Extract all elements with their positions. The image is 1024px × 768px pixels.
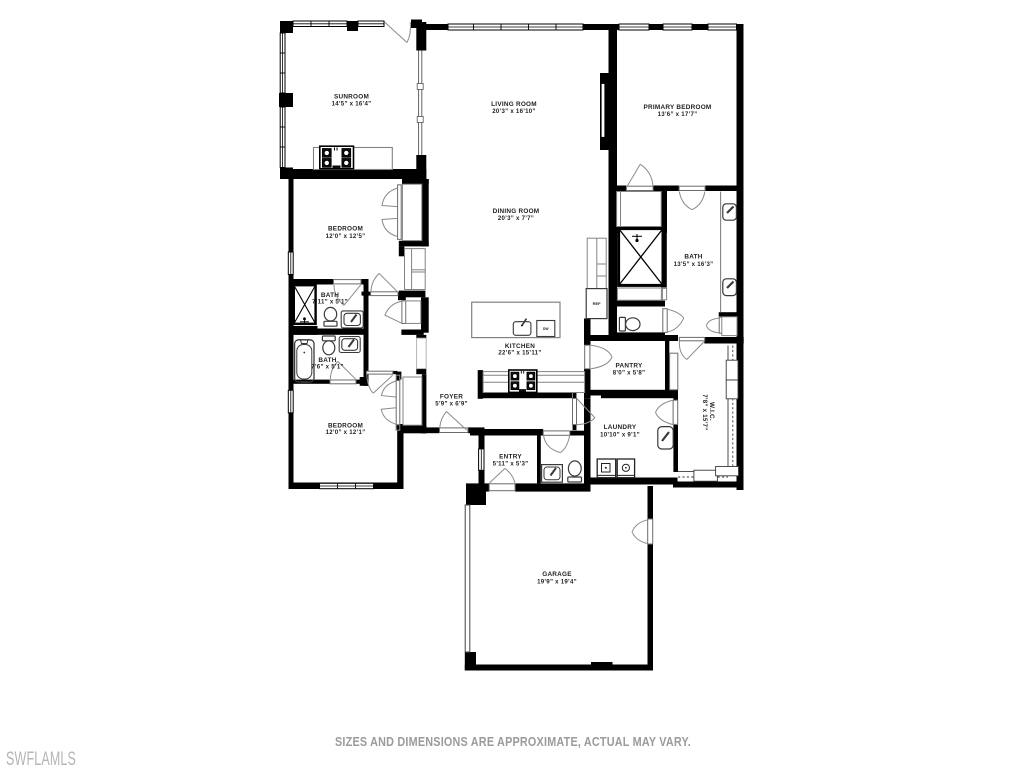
svg-text:LAUNDRY: LAUNDRY: [604, 424, 637, 431]
svg-text:5’9” x 6’9”: 5’9” x 6’9”: [435, 401, 468, 408]
svg-text:13’5” x 16’3”: 13’5” x 16’3”: [674, 261, 714, 268]
svg-text:12’0” x 12’5”: 12’0” x 12’5”: [326, 233, 366, 240]
svg-text:ENTRY: ENTRY: [499, 454, 522, 461]
svg-text:BATH: BATH: [684, 254, 702, 261]
svg-text:SWFLAMLS: SWFLAMLS: [6, 749, 76, 768]
svg-text:14’5” x 16’4”: 14’5” x 16’4”: [332, 100, 372, 107]
svg-text:W.I.C.: W.I.C.: [708, 402, 715, 421]
svg-text:8’0” x 5’8”: 8’0” x 5’8”: [613, 370, 646, 377]
svg-text:5’11” x 5’3”: 5’11” x 5’3”: [493, 461, 529, 468]
svg-text:SIZES AND DIMENSIONS ARE APPRO: SIZES AND DIMENSIONS ARE APPROXIMATE, AC…: [335, 734, 691, 749]
svg-text:REF: REF: [593, 301, 602, 306]
svg-text:20’3” x 16’10”: 20’3” x 16’10”: [492, 108, 535, 115]
svg-text:7’8” x 15’7”: 7’8” x 15’7”: [701, 394, 708, 430]
svg-text:LIVING ROOM: LIVING ROOM: [491, 101, 537, 108]
svg-text:22’6” x 15’11”: 22’6” x 15’11”: [498, 350, 541, 357]
svg-text:BEDROOM: BEDROOM: [328, 226, 363, 233]
svg-text:13’6” x 17’7”: 13’6” x 17’7”: [658, 111, 698, 118]
svg-text:DW: DW: [543, 327, 549, 331]
svg-text:10’10” x 9’1”: 10’10” x 9’1”: [600, 432, 640, 439]
svg-text:12’0” x 12’1”: 12’0” x 12’1”: [326, 429, 366, 436]
svg-text:GARAGE: GARAGE: [542, 571, 572, 578]
svg-text:PRIMARY BEDROOM: PRIMARY BEDROOM: [643, 104, 711, 111]
svg-text:19’9” x 19’4”: 19’9” x 19’4”: [537, 578, 577, 585]
svg-text:20’3” x 7’7”: 20’3” x 7’7”: [498, 215, 534, 222]
svg-text:7’6” x 5’1”: 7’6” x 5’1”: [311, 363, 344, 370]
svg-text:DINING ROOM: DINING ROOM: [493, 208, 540, 215]
svg-text:SUNROOM: SUNROOM: [334, 93, 369, 100]
svg-text:FOYER: FOYER: [440, 394, 463, 401]
svg-text:7’11” x 5’1”: 7’11” x 5’1”: [312, 299, 348, 306]
